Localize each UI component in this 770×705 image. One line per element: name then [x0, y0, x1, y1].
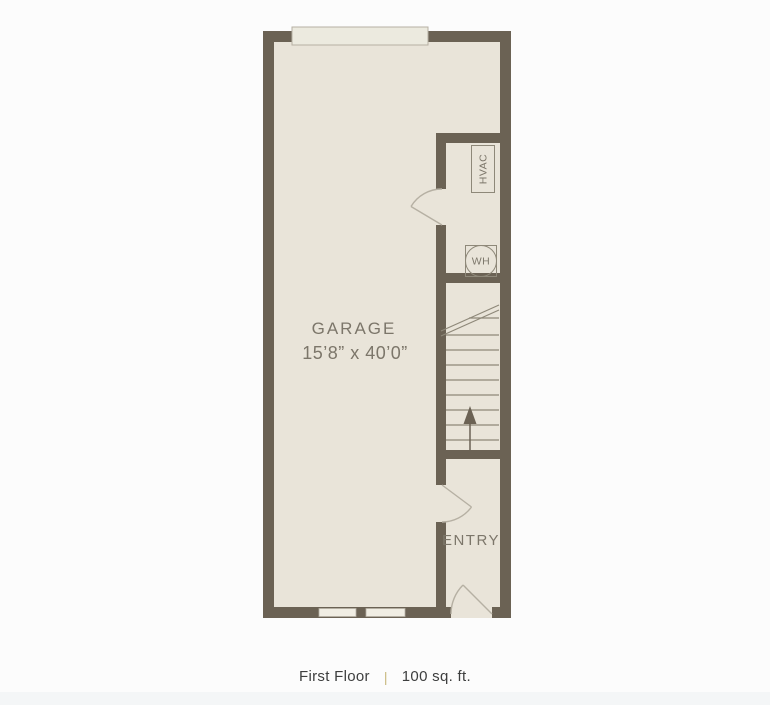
floor-area: 100 sq. ft.	[402, 668, 471, 685]
plan-caption: First Floor | 100 sq. ft.	[0, 668, 770, 685]
caption-separator: |	[384, 669, 388, 685]
garage-door-panel	[292, 27, 428, 45]
wall-bottom-right-segment	[492, 607, 511, 618]
floor-plan-drawing: HVAC WH	[0, 0, 770, 705]
entry-label: ENTRY	[442, 532, 500, 549]
window-right	[366, 609, 405, 617]
hvac-label: HVAC	[478, 154, 490, 184]
wall-right	[500, 31, 511, 618]
water-heater-label: WH	[472, 256, 491, 268]
wall-divider-middle	[436, 225, 446, 485]
garage-dimensions: 15’8” x 40’0”	[302, 343, 408, 363]
garage-label: GARAGE	[312, 319, 397, 338]
floor-name: First Floor	[299, 668, 370, 685]
bottom-strip	[0, 692, 770, 705]
wall-divider-upper	[436, 133, 446, 189]
window-left	[319, 609, 356, 617]
floor-plan-page: HVAC WH	[0, 0, 770, 705]
wall-left	[263, 31, 274, 618]
wall-bottom-left-segment	[263, 607, 451, 618]
